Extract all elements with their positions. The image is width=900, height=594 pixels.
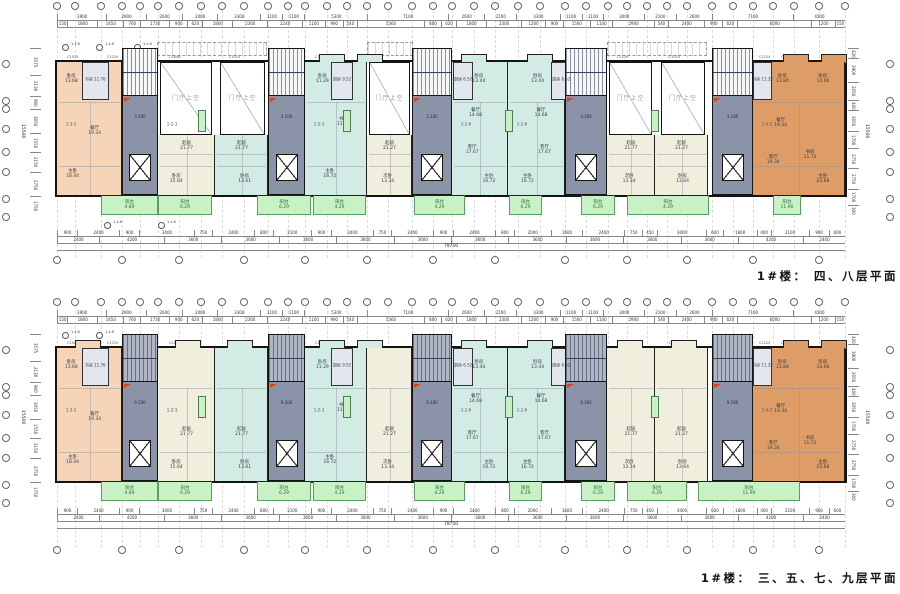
dim-value: 4200: [99, 515, 164, 521]
side-total-dim: 15500: [18, 334, 27, 501]
grid-bubble: [154, 2, 162, 10]
dim-value: 1800: [723, 230, 757, 236]
room-label: 主卧23.68: [816, 460, 829, 470]
grid-bubble: [118, 256, 126, 264]
dim-value: 750: [373, 508, 391, 514]
grid-bubble: [769, 2, 777, 10]
balcony-label: 阳台6.29: [279, 200, 289, 210]
dim-value: 450: [642, 508, 656, 514]
dim-value: 900: [169, 317, 187, 323]
dim-value: 900: [704, 317, 722, 323]
grid-bubble: [536, 2, 544, 10]
dim-value: 2600: [146, 14, 183, 20]
room-label: 起居21.27: [675, 141, 688, 151]
grid-bubble: [71, 2, 79, 10]
dim-value: 3600: [623, 515, 680, 521]
light-well: [505, 396, 513, 418]
dim-value: 1800: [67, 317, 97, 323]
grid-bubble: [886, 125, 894, 133]
grid-bubble: [769, 298, 777, 306]
balcony-label: 阳台4.89: [124, 200, 134, 210]
room-label: 厨房 6.52: [552, 77, 570, 82]
grid-bubble: [663, 2, 671, 10]
dim-value: 3400: [139, 508, 194, 514]
grid-bubble: [53, 298, 61, 306]
room-label: 书房 11.76: [85, 363, 106, 368]
room-label: 主卧16.72: [483, 460, 496, 470]
partition-line: [799, 102, 800, 195]
dim-value: 1730: [140, 21, 169, 27]
core-elevation-label: 3.100: [268, 114, 305, 119]
dim-value: 3600: [566, 515, 623, 521]
grid-bubble: [708, 298, 716, 306]
balcony: 阳台4.29: [313, 481, 366, 501]
grid-bubble: [2, 97, 10, 105]
room-label: 卧房14.06: [816, 360, 829, 370]
elevator-shaft: [722, 154, 744, 181]
dim-value: 900: [119, 508, 139, 514]
grid-bubble: [363, 256, 371, 264]
grid-bubble: [623, 298, 631, 306]
void-label: 门厅上空: [370, 93, 409, 102]
dim-value: 540: [654, 317, 668, 323]
grid-bubble: [175, 546, 183, 554]
dim-value: 2400: [212, 230, 254, 236]
entrance-hall-void: 门厅上空: [220, 62, 265, 135]
dim-value: 600: [706, 230, 722, 236]
dim-value: 3400: [139, 230, 194, 236]
dim-value: 1550: [30, 133, 41, 151]
balcony-label: 阳台4.29: [334, 200, 344, 210]
dim-value: 3600: [221, 515, 278, 521]
unit-number: 1-2-6: [461, 408, 472, 413]
room-label: 起居21.77: [625, 141, 638, 151]
balcony-label: 阳台4.29: [334, 486, 344, 496]
room-label: 主卧18.44: [66, 455, 79, 465]
stairwell: [268, 48, 305, 96]
grid-bubble: [2, 346, 10, 354]
dim-value: 540: [343, 317, 357, 323]
grid-bubble: [2, 434, 10, 442]
room-label: 餐厅14.68: [535, 108, 548, 118]
dim-value: 3900: [57, 14, 106, 20]
room-label: 厨房 6.52: [454, 363, 472, 368]
dim-value: 1100: [282, 310, 304, 316]
grid-bubble: [284, 298, 292, 306]
dim-value: 2100: [644, 310, 676, 316]
balcony: 阳台6.29: [257, 195, 311, 215]
dim-value: 1700: [848, 417, 859, 434]
stairwell: [565, 334, 607, 382]
grid-bubble: [448, 2, 456, 10]
balcony-label: 阳台6.29: [279, 486, 289, 496]
grid-bubble: [643, 2, 651, 10]
elevator-shaft: [129, 154, 151, 181]
dim-value: 900: [57, 508, 77, 514]
dim-value: 2300: [486, 21, 521, 27]
dim-value: 620: [187, 21, 202, 27]
room-label: 次卧13.34: [381, 460, 394, 470]
light-well: [505, 110, 513, 132]
grid-bubble: [175, 256, 183, 264]
stairwell: [268, 334, 305, 382]
grid-bubble: [53, 546, 61, 554]
room-label: 卧房11.29: [316, 74, 329, 84]
dim-value: 1750: [30, 482, 41, 501]
grid-bubble: [71, 298, 79, 306]
unit-number: 1-2-6: [461, 122, 472, 127]
dim-value: 1800: [456, 317, 486, 323]
grid-bubble: [136, 2, 144, 10]
dim-value: 2750: [848, 434, 859, 454]
dim-value: 3575: [30, 334, 41, 361]
dim-value: 620: [441, 317, 456, 323]
dim-value: 3600: [681, 515, 738, 521]
room-label: 卧房13.64: [676, 460, 689, 470]
dim-value: 900: [433, 508, 453, 514]
dim-value: 2400: [668, 21, 704, 27]
light-well: [343, 110, 351, 132]
grid-bubble: [448, 298, 456, 306]
dim-value: 2900: [106, 14, 146, 20]
grid-bubble: [2, 105, 10, 113]
grid-bubble: [790, 298, 798, 306]
grid-bubble: [604, 298, 612, 306]
dim-value: 540: [343, 21, 357, 27]
dim-value: 600: [706, 508, 722, 514]
room-label: 主卧16.72: [323, 455, 336, 465]
stairwell: [412, 334, 452, 382]
dim-value: 1700: [848, 131, 859, 148]
dim-value: 7100: [712, 310, 793, 316]
stairwell: [122, 48, 158, 96]
plan2-title: 1#楼： 三、五、七、九层平面: [701, 570, 898, 586]
dim-value: 900: [433, 230, 453, 236]
grid-bubble: [749, 298, 757, 306]
detail-marker-label: 1.4.6: [143, 42, 152, 46]
room-label: 客厅19.34: [767, 441, 780, 451]
room-label: 餐厅14.68: [469, 108, 482, 118]
dim-value: 2100: [273, 508, 311, 514]
dim-value: 150: [835, 21, 845, 27]
grid-bubble: [886, 383, 894, 391]
stairwell: [712, 334, 753, 382]
grid-bubble: [514, 298, 522, 306]
balcony-label: 阳台6.29: [180, 486, 190, 496]
room-label: 书房 11.32: [752, 363, 773, 368]
room-label: 起居21.27: [383, 427, 396, 437]
dim-value: 3600: [336, 237, 393, 243]
window-tag: C1224: [759, 55, 770, 59]
dim-value: 2400: [212, 508, 254, 514]
dim-value: 420: [848, 48, 859, 58]
room-label: 次卧13.34: [381, 174, 394, 184]
dim-value: 2400: [57, 237, 99, 243]
grid-bubble: [683, 546, 691, 554]
grid-bubble: [2, 148, 10, 156]
dim-value: 1500: [563, 317, 590, 323]
room-label: 起居21.77: [235, 427, 248, 437]
dim-value: 2900: [612, 21, 653, 27]
dim-value: 2130: [30, 75, 41, 96]
dim-value: 1200: [811, 21, 835, 27]
dim-value: 3600: [508, 237, 565, 243]
balcony: 阳台4.29: [414, 481, 465, 501]
dim-value: 3050: [848, 396, 859, 417]
dim-value: 900: [545, 21, 563, 27]
dim-value: 5360: [357, 21, 424, 27]
dim-value: 3600: [336, 515, 393, 521]
elevator-shaft: [276, 440, 298, 467]
dim-value: 2100: [771, 508, 809, 514]
dim-value: 1200: [811, 317, 835, 323]
grid-bubble: [2, 383, 10, 391]
unit-number: 1-2-3: [314, 408, 325, 413]
dim-value: 2600: [146, 310, 183, 316]
dim-value: 900: [30, 96, 41, 109]
grid-bubble: [264, 298, 272, 306]
grid-bubble: [749, 546, 757, 554]
room-label: 卧房13.61: [238, 174, 251, 184]
dim-value: 3600: [681, 237, 738, 243]
grid-bubble: [514, 2, 522, 10]
total-length-dim: 79750: [57, 244, 845, 251]
grid-bubble: [643, 298, 651, 306]
dim-value: 2000: [514, 508, 551, 514]
grid-bubble: [197, 2, 205, 10]
room-label: 卧房14.06: [816, 74, 829, 84]
room-label: 卧房13.44: [472, 360, 485, 370]
dim-value: 900: [325, 317, 343, 323]
dim-value: 2400: [453, 230, 495, 236]
dim-value: 2750: [848, 168, 859, 188]
grid-bubble: [218, 2, 226, 10]
dim-value: 1100: [302, 317, 325, 323]
grid-bubble: [2, 60, 10, 68]
balcony-label: 阳台6.29: [593, 486, 603, 496]
partition-line: [799, 388, 800, 481]
grid-bubble: [97, 298, 105, 306]
dim-value: 900: [325, 21, 343, 27]
core-elevation-label: 9.100: [712, 400, 753, 405]
dim-value: 1100: [590, 21, 613, 27]
dim-value: 400: [848, 386, 859, 396]
dim-value: 3000: [657, 508, 707, 514]
partition-line: [90, 102, 91, 195]
grid-bubble: [136, 298, 144, 306]
grid-bubble: [841, 2, 849, 10]
dim-value: 2240: [267, 21, 302, 27]
grid-bubble: [429, 2, 437, 10]
dim-value: 4200: [793, 14, 845, 20]
partition-line: [90, 388, 91, 481]
unit-number: 1-2-3: [314, 122, 325, 127]
grid-bubble: [683, 256, 691, 264]
right-dim-col: 4203900205040030501700275027501700300: [848, 334, 859, 501]
balcony: 阳台4.89: [101, 195, 158, 215]
dim-value: 3000: [603, 310, 644, 316]
window-tag: C1229: [107, 55, 118, 59]
grid-bubble: [886, 105, 894, 113]
grid-bubble: [683, 2, 691, 10]
balcony-label: 阳台6.29: [593, 200, 603, 210]
core-elevation-label: 9.100: [122, 400, 158, 405]
stairwell: [712, 48, 753, 96]
dim-value: 1100: [560, 14, 582, 20]
dim-value: 2300: [232, 317, 267, 323]
grid-bubble: [2, 213, 10, 221]
dim-value: 3300: [217, 14, 260, 20]
dim-value: 400: [848, 100, 859, 110]
dim-value: 3600: [164, 237, 221, 243]
window-tag: C1224: [759, 341, 770, 345]
elevator-shaft: [276, 154, 298, 181]
dim-value: 4200: [738, 515, 803, 521]
grid-bubble: [240, 298, 248, 306]
dim-value: 3600: [279, 515, 336, 521]
detail-marker-label: 1.4.6: [105, 330, 114, 334]
grid-bubble: [118, 298, 126, 306]
entrance-canopy: [607, 42, 707, 56]
grid-bubble: [240, 256, 248, 264]
light-well: [198, 396, 206, 418]
grid-bubble: [749, 2, 757, 10]
entrance-hall-void: 门厅上空: [369, 62, 410, 135]
dim-value: 900: [119, 230, 139, 236]
void-label: 门厅上空: [161, 93, 211, 102]
grid-bubble: [886, 434, 894, 442]
dim-value: 1700: [848, 189, 859, 206]
dim-value: 2750: [30, 172, 41, 196]
room-label: 卧房13.61: [238, 460, 251, 470]
grid-bubble: [2, 125, 10, 133]
dim-value: 900: [545, 317, 563, 323]
entrance-hall-void: 门厅上空: [609, 62, 652, 135]
window-tag: C1806: [169, 55, 180, 59]
dim-value: 620: [722, 317, 737, 323]
grid-bubble: [429, 256, 437, 264]
grid-bubble: [53, 256, 61, 264]
grid-bubble: [561, 298, 569, 306]
core-elevation-label: 9.100: [268, 400, 305, 405]
dim-value: 2100: [644, 14, 676, 20]
dim-value: 3000: [657, 230, 707, 236]
grid-bubble: [886, 213, 894, 221]
dim-value: 3000: [603, 14, 644, 20]
grid-bubble: [491, 546, 499, 554]
grid-bubble: [323, 298, 331, 306]
grid-bubble: [97, 2, 105, 10]
dim-value: 2300: [486, 317, 521, 323]
grid-bubble: [470, 2, 478, 10]
dim-value: 2100: [484, 14, 516, 20]
dim-value: 2400: [182, 310, 217, 316]
bottom-dim-row-2: 2400420036003600360036003600360036003600…: [57, 237, 845, 244]
dim-value: 900: [30, 382, 41, 395]
grid-bubble: [886, 346, 894, 354]
entrance-canopy: [157, 42, 267, 56]
room-label: 卧房13.68: [65, 360, 78, 370]
grid-bubble: [264, 2, 272, 10]
room-label: 书房 11.76: [85, 77, 106, 82]
grid-bubble: [663, 298, 671, 306]
room-label: 起居21.77: [180, 427, 193, 437]
dim-value: 2400: [331, 508, 373, 514]
drawing-sheet: 1#楼： 四、八层平面 1#楼： 三、五、七、九层平面 390029002600…: [0, 0, 900, 594]
dim-value: 900: [311, 230, 331, 236]
dim-value: 3900: [57, 310, 106, 316]
dim-value: 1800: [723, 508, 757, 514]
grid-bubble: [886, 481, 894, 489]
dim-value: 620: [441, 21, 456, 27]
grid-bubble: [886, 499, 894, 507]
room-label: 主卧16.72: [521, 174, 534, 184]
grid-bubble: [815, 256, 823, 264]
dim-value: 2050: [848, 82, 859, 100]
top-dim-row-2: 1501800145076017309006201800230022401100…: [57, 21, 845, 28]
dim-value: 800: [495, 508, 514, 514]
balcony: 阳台6.29: [257, 481, 311, 501]
dim-value: 2750: [848, 148, 859, 168]
dim-value: 1800: [202, 317, 232, 323]
room-label: 卧房13.68: [65, 74, 78, 84]
dim-value: 3600: [566, 237, 623, 243]
room-label: 厨房 9.52: [333, 363, 351, 368]
room-label: 卧房13.44: [531, 360, 544, 370]
balcony-label: 阳台4.29: [434, 486, 444, 496]
room-label: 餐厅19.34: [88, 126, 101, 136]
room-label: 书房11.72: [804, 436, 817, 446]
dim-value: 900: [809, 508, 829, 514]
core-elevation-label: 3.100: [565, 114, 607, 119]
balcony-label: 阳台11.90: [781, 200, 794, 210]
balcony: 阳台6.29: [158, 481, 212, 501]
balcony-label: 阳台4.29: [652, 486, 662, 496]
dim-value: 400: [757, 230, 771, 236]
detail-marker-label: 1.4.6: [167, 220, 176, 224]
elevator-shaft: [129, 440, 151, 467]
dim-value: 760: [123, 317, 140, 323]
dim-value: 2400: [77, 230, 119, 236]
dim-value: 1750: [30, 196, 41, 215]
grid-bubble: [408, 298, 416, 306]
dim-value: 2750: [848, 454, 859, 474]
balcony-label: 阳台6.29: [520, 200, 530, 210]
entrance-hall-void: 门厅上空: [661, 62, 705, 135]
dim-value: 2400: [453, 508, 495, 514]
top-dim-row-1: 3900290026002400330011001100530071002600…: [57, 310, 845, 317]
grid-bubble: [491, 298, 499, 306]
grid-bubble: [491, 2, 499, 10]
dim-value: 6000: [737, 21, 811, 27]
grid-bubble: [2, 195, 10, 203]
dim-value: 2600: [676, 14, 713, 20]
dim-value: 2600: [448, 310, 485, 316]
dim-value: 1100: [302, 21, 325, 27]
core-elevation-label: 3.100: [412, 114, 452, 119]
balcony: 阳台4.29: [313, 195, 366, 215]
grid-bubble: [582, 298, 590, 306]
dim-value: 2300: [232, 21, 267, 27]
balcony: 阳台11.90: [698, 481, 800, 501]
light-well: [343, 396, 351, 418]
grid-bubble: [683, 298, 691, 306]
grid-bubble: [561, 256, 569, 264]
grid-bubble: [536, 298, 544, 306]
grid-bubble: [470, 298, 478, 306]
room-label: 卧房13.44: [472, 74, 485, 84]
grid-bubble: [240, 546, 248, 554]
